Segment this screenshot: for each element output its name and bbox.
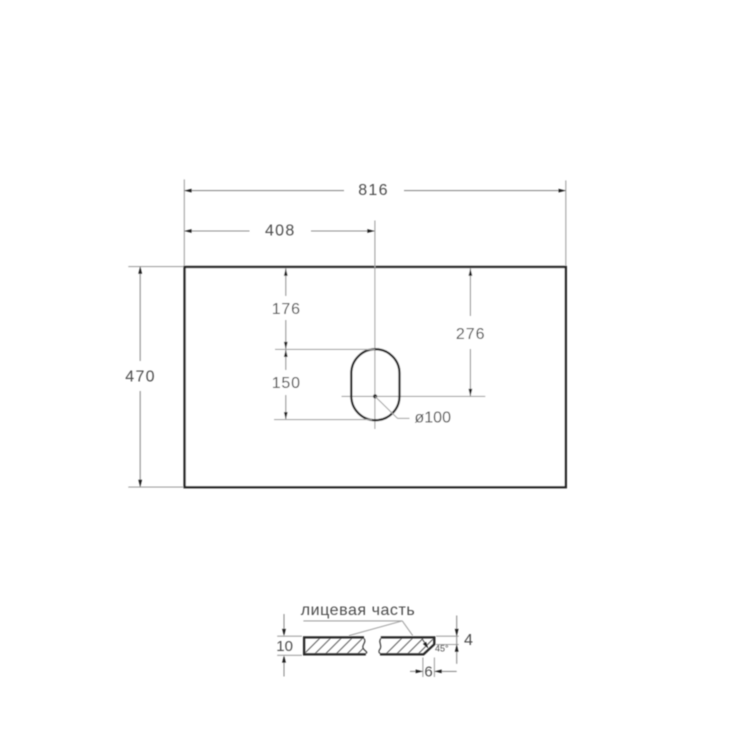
svg-text:408: 408 <box>265 223 296 240</box>
svg-text:ø100: ø100 <box>415 410 452 427</box>
svg-text:6: 6 <box>424 664 432 681</box>
svg-text:лицевая часть: лицевая часть <box>301 602 416 619</box>
svg-text:4: 4 <box>464 632 473 649</box>
svg-text:176: 176 <box>272 301 301 318</box>
svg-text:470: 470 <box>125 369 156 386</box>
svg-text:276: 276 <box>456 326 486 343</box>
svg-text:150: 150 <box>272 375 301 392</box>
svg-text:10: 10 <box>276 638 293 655</box>
svg-text:45°: 45° <box>435 643 449 653</box>
svg-text:816: 816 <box>358 182 389 199</box>
